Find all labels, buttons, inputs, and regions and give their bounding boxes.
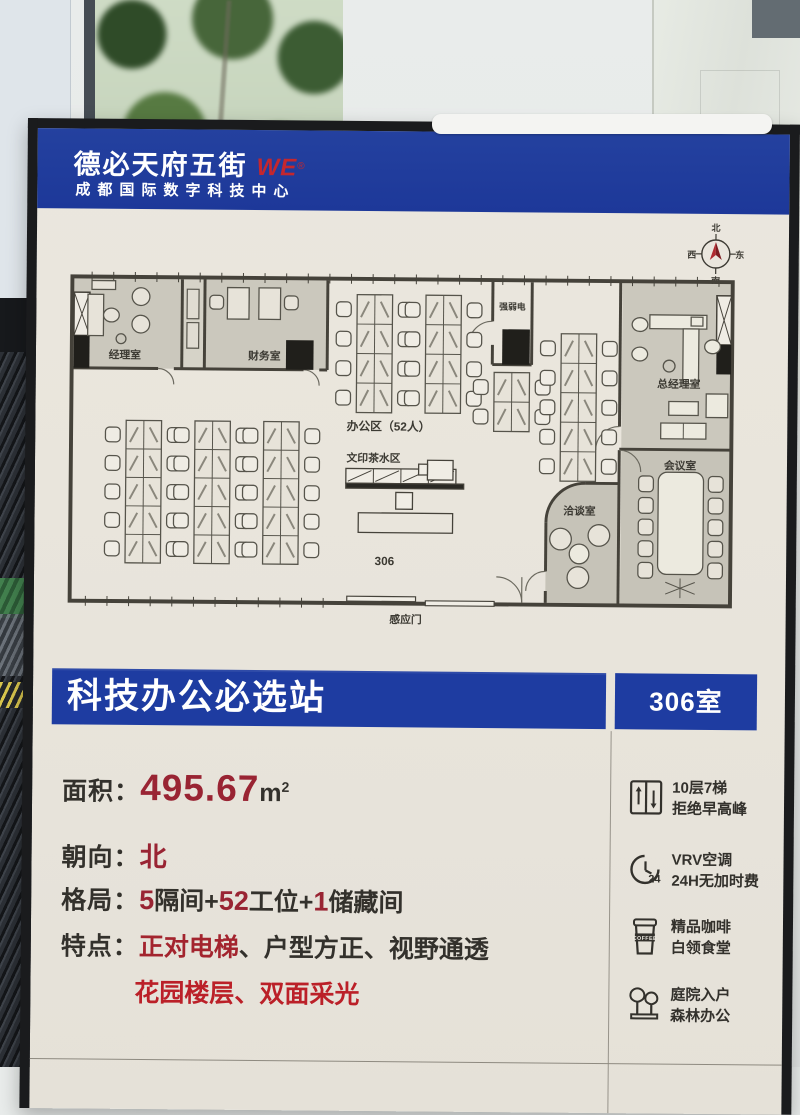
spec-area-label: 面积： [62, 777, 140, 806]
spec-layout-n3: 1 [313, 887, 328, 917]
amenity-hvac: 24 VRV空调 24H无加时费 [627, 847, 759, 896]
feature-3: 视野通透 [389, 935, 489, 964]
trees-icon [626, 984, 662, 1024]
registered-mark: ® [297, 161, 304, 172]
amenity-elevator-text: 10层7梯 拒绝早高峰 [672, 778, 747, 821]
compass-east: 东 [735, 249, 744, 260]
feature-sep1: 、 [239, 934, 264, 962]
feature-1: 正对电梯 [139, 933, 239, 962]
spec-layout-t2: 工位+ [249, 888, 314, 917]
amenity-coffee: COFFEE 精品咖啡 白领食堂 [627, 914, 759, 963]
amenity-coffee-line2: 白领食堂 [671, 938, 731, 960]
clock-24-icon: 24 [627, 849, 663, 889]
gm-room-label: 总经理室 [657, 377, 701, 391]
compass-north: 北 [712, 222, 721, 233]
amenity-garden-text: 庭院入户 森林办公 [670, 985, 730, 1028]
floorplan-svg: 经理室 财务室 办公区（52人） 强弱电 总经理室 文印茶水区 洽谈室 会议室 … [60, 262, 743, 634]
amenity-elevator: 10层7梯 拒绝早高峰 [628, 775, 760, 824]
spec-layout-t1: 隔间+ [154, 887, 219, 916]
floorplan-poster: 德必天府五街WE® 成都国际数字科技中心 北 东 南 西 [19, 118, 800, 1115]
amenity-hvac-line1: VRV空调 [671, 850, 759, 872]
brand-logo-we: WE [256, 154, 297, 181]
amenity-elevator-line2: 拒绝早高峰 [672, 799, 747, 821]
spec-features: 特点：正对电梯、户型方正、视野通透 [61, 926, 489, 966]
sensor-door-label: 感应门 [389, 612, 422, 626]
vertical-divider [607, 731, 611, 1113]
room-number-label: 306 [375, 555, 395, 568]
coffee-icon: COFFEE [627, 916, 663, 956]
feature-5: 双面采光 [259, 980, 359, 1009]
spec-layout-label: 格局： [61, 886, 139, 915]
finance-room-label: 财务室 [247, 348, 281, 362]
office-area-label: 办公区（52人） [347, 419, 431, 434]
spec-layout-t3: 储藏间 [328, 889, 403, 918]
amenity-garden-line2: 森林办公 [670, 1006, 730, 1028]
spec-orientation-label: 朝向： [61, 843, 139, 872]
manager-room-label: 经理室 [109, 347, 142, 361]
compass-west: 西 [687, 250, 696, 260]
clock-24-text: 24 [648, 873, 661, 885]
amenity-hvac-text: VRV空调 24H无加时费 [671, 850, 759, 893]
amenity-elevator-line1: 10层7梯 [672, 778, 747, 800]
negotiation-room-label: 洽谈室 [563, 504, 596, 518]
spec-features-line2: 花园楼层、双面采光 [134, 973, 359, 1011]
brand-name: 德必天府五街 [73, 149, 247, 181]
coffee-label-text: COFFEE [633, 936, 657, 942]
poster-clip-tab [432, 114, 772, 134]
feature-sep2: 、 [364, 935, 389, 963]
spec-layout: 格局：5隔间+52工位+1储藏间 [61, 880, 404, 919]
utility-room-label: 强弱电 [499, 301, 526, 312]
ceiling-corner-panel [752, 0, 800, 38]
banner-bar: 科技办公必选站 [52, 668, 606, 729]
banner-title: 科技办公必选站 [52, 668, 606, 729]
spec-area-unit-sup: 2 [282, 779, 290, 795]
elevator-icon [628, 777, 664, 817]
spec-layout-n1: 5 [139, 885, 154, 915]
amenity-coffee-text: 精品咖啡 白领食堂 [671, 917, 731, 960]
amenity-coffee-line1: 精品咖啡 [671, 917, 731, 939]
spec-area: 面积：495.67m2 [62, 766, 290, 810]
feature-sep3: 、 [234, 980, 259, 1008]
spec-layout-n2: 52 [219, 886, 249, 916]
spec-orientation: 朝向：北 [61, 834, 166, 874]
poster-subtitle: 成都国际数字科技中心 [75, 178, 295, 201]
meeting-room-label: 会议室 [664, 458, 697, 472]
print-tea-label: 文印茶水区 [346, 451, 400, 465]
amenity-garden: 庭院入户 森林办公 [626, 982, 758, 1031]
brand-row: 德必天府五街WE® [73, 142, 304, 183]
feature-4: 花园楼层 [134, 979, 234, 1008]
amenity-hvac-line2: 24H无加时费 [671, 871, 759, 893]
floorplan-drawing: 经理室 财务室 办公区（52人） 强弱电 总经理室 文印茶水区 洽谈室 会议室 … [60, 262, 743, 634]
spec-area-unit: m [259, 779, 281, 807]
spec-orientation-value: 北 [139, 842, 166, 872]
bottom-divider [30, 1058, 782, 1066]
banner-room-number: 306室 [615, 673, 757, 730]
feature-2: 户型方正 [264, 934, 364, 963]
spec-area-value: 495.67 [140, 767, 260, 809]
amenity-garden-line1: 庭院入户 [670, 985, 730, 1007]
poster-header: 德必天府五街WE® 成都国际数字科技中心 [37, 128, 790, 215]
spec-features-label: 特点： [61, 932, 139, 961]
